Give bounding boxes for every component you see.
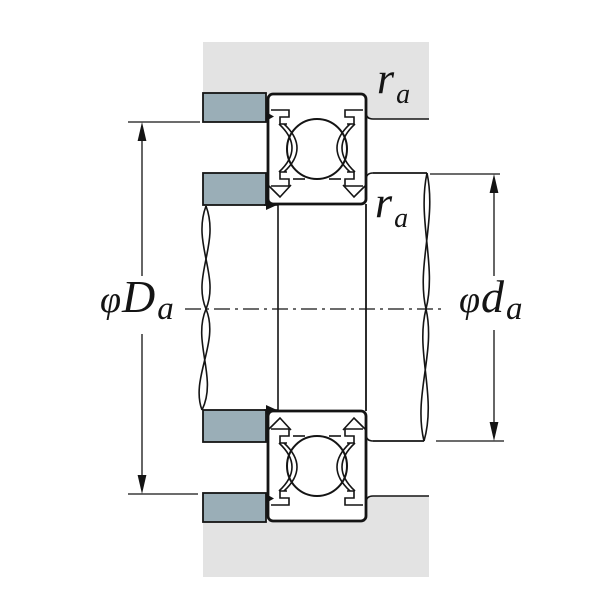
da-symbol: d [481, 271, 504, 322]
Da-phi-symbol: φ [100, 279, 121, 321]
Da-symbol: D [122, 271, 155, 322]
Da-subscript: a [157, 291, 174, 327]
da-subscript: a [506, 291, 523, 327]
bearing-mounting-diagram: ra ra φDa φda [0, 0, 600, 600]
label-shaft-fillet-ra: ra [375, 181, 408, 225]
shaft-break-right-curve-2 [423, 173, 430, 441]
housing-fillet-subscript: a [396, 79, 410, 110]
label-housing-fillet-ra: ra [377, 57, 410, 101]
shaft-spacer-bottom [203, 410, 266, 442]
label-shaft-abutment-diameter: φda [459, 274, 523, 320]
housing-cap-ring-top [203, 93, 266, 122]
label-housing-abutment-diameter: φDa [100, 274, 174, 320]
Da-arrow-down [138, 475, 147, 494]
housing-fillet-symbol: r [377, 54, 394, 103]
shaft-fillet-symbol: r [375, 178, 392, 227]
Da-arrow-up [138, 122, 147, 141]
housing-cap-ring-bottom [203, 493, 266, 522]
da-arrow-up [490, 174, 499, 193]
shaft-spacer-top [203, 173, 266, 205]
da-arrow-down [490, 422, 499, 441]
bearing-bottom [266, 405, 366, 521]
shaft-break-left-curve-2 [199, 206, 210, 410]
da-phi-symbol: φ [459, 279, 480, 321]
shaft-fillet-subscript: a [394, 203, 408, 234]
bearing-ball [287, 119, 347, 179]
bearing-top [266, 94, 366, 210]
